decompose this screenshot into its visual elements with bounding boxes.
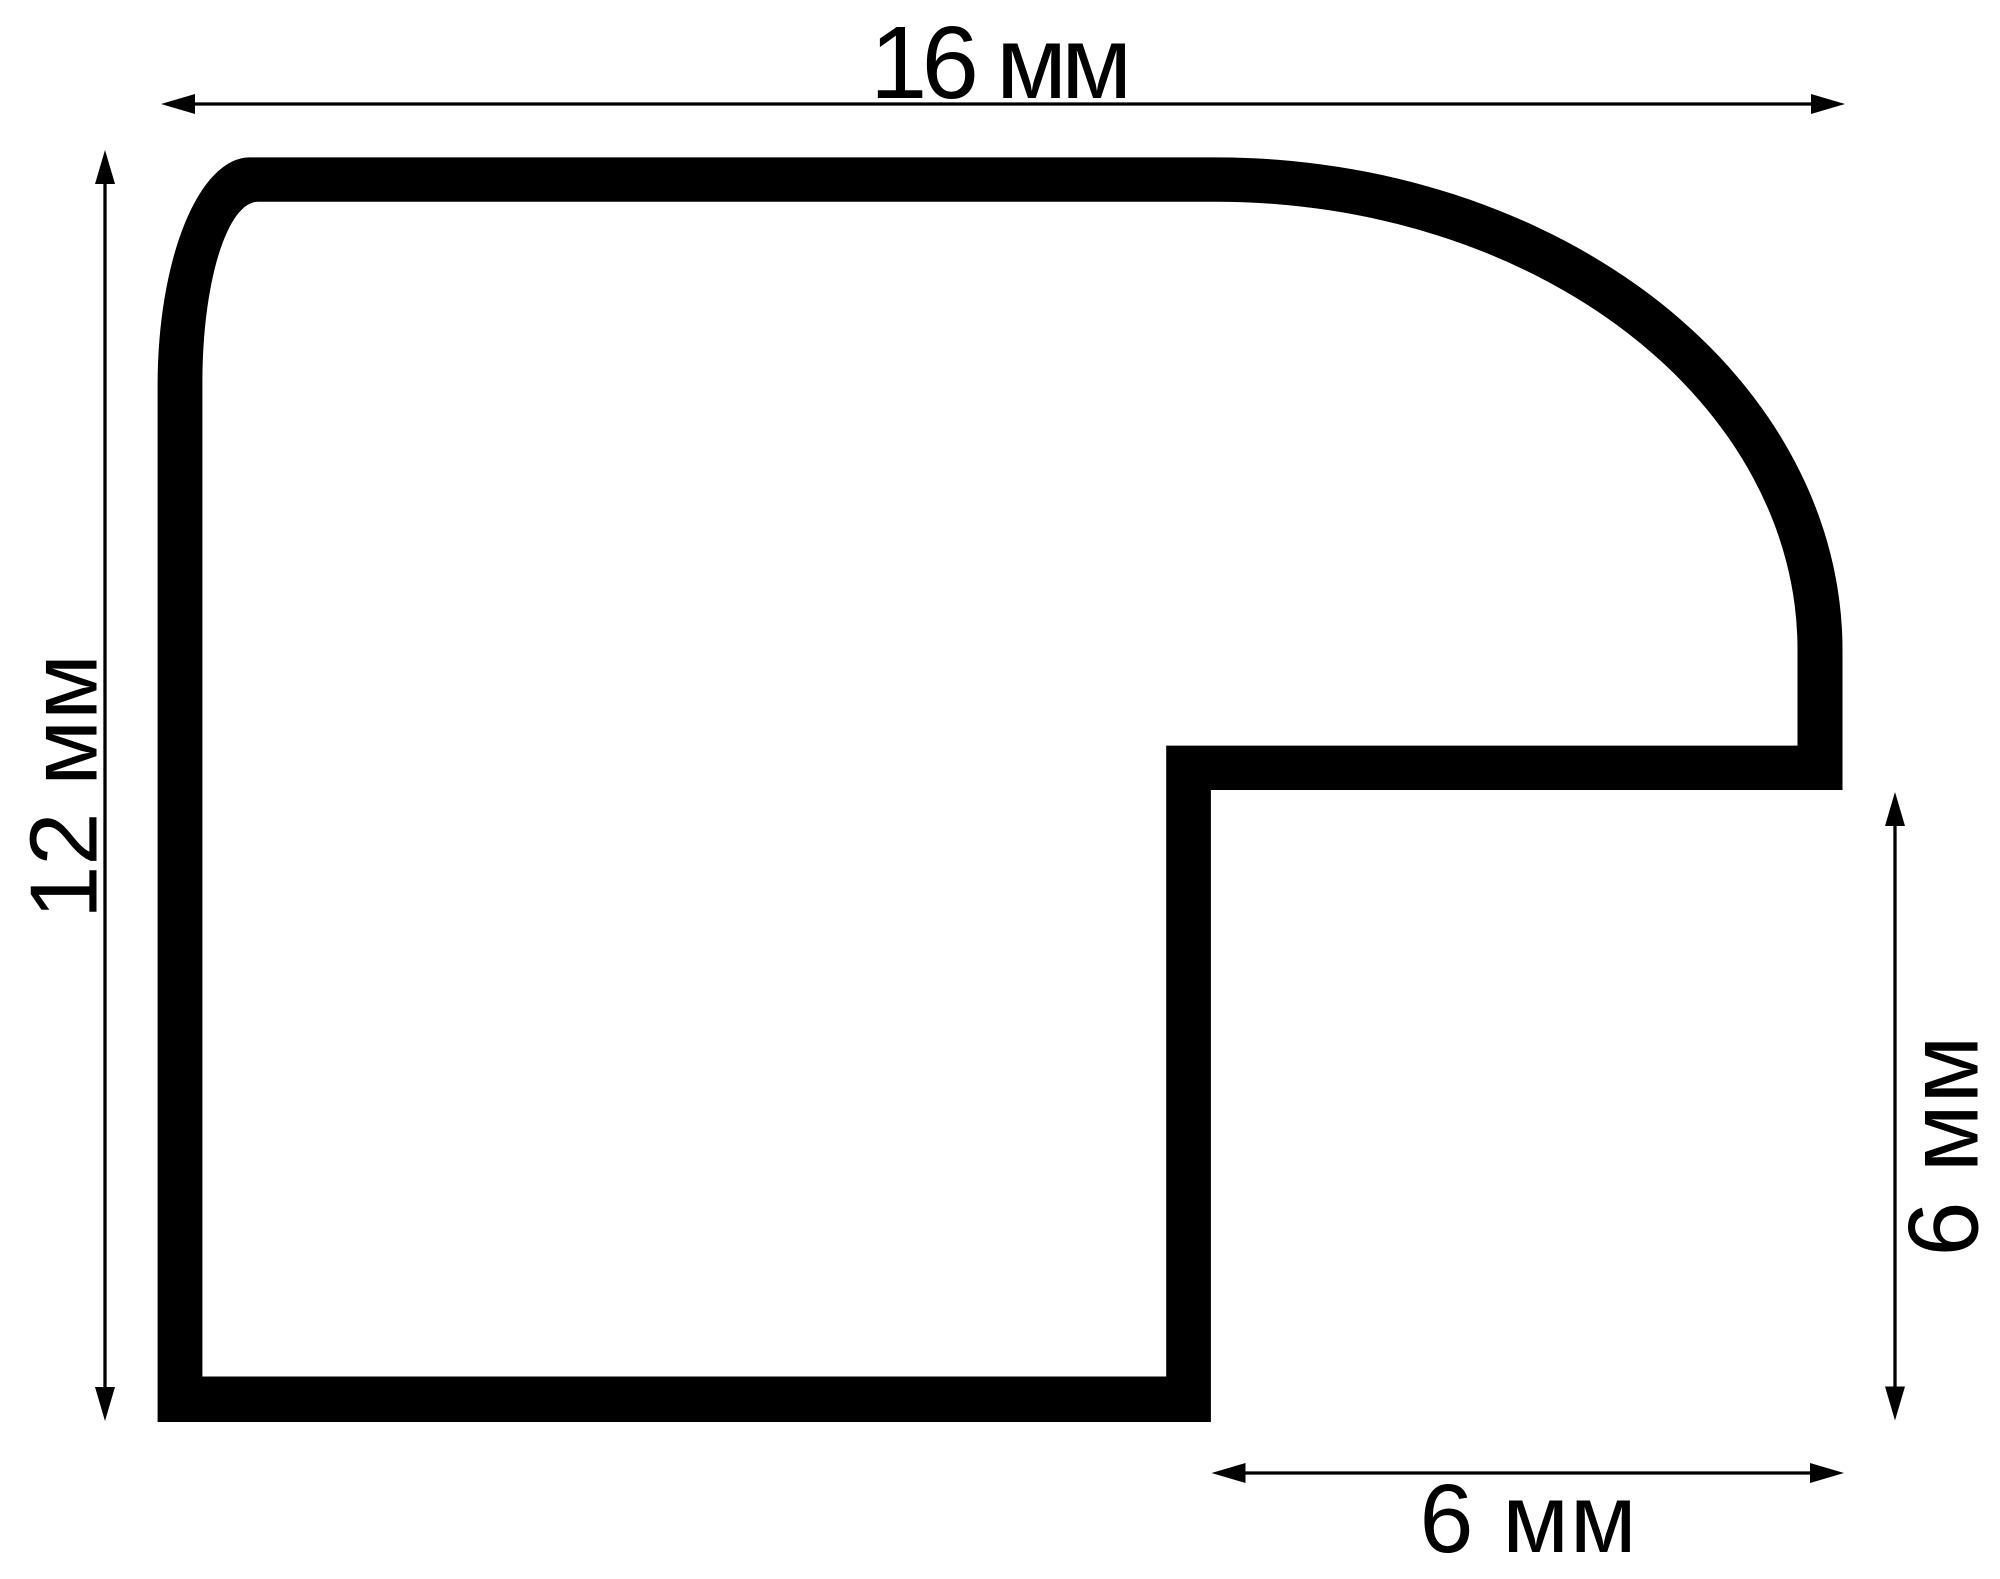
svg-text:16 мм: 16 мм	[870, 5, 1132, 120]
svg-text:6 мм: 6 мм	[1888, 1036, 1999, 1257]
svg-text:6 мм: 6 мм	[1420, 1464, 1637, 1573]
svg-text:12 мм: 12 мм	[11, 654, 118, 919]
